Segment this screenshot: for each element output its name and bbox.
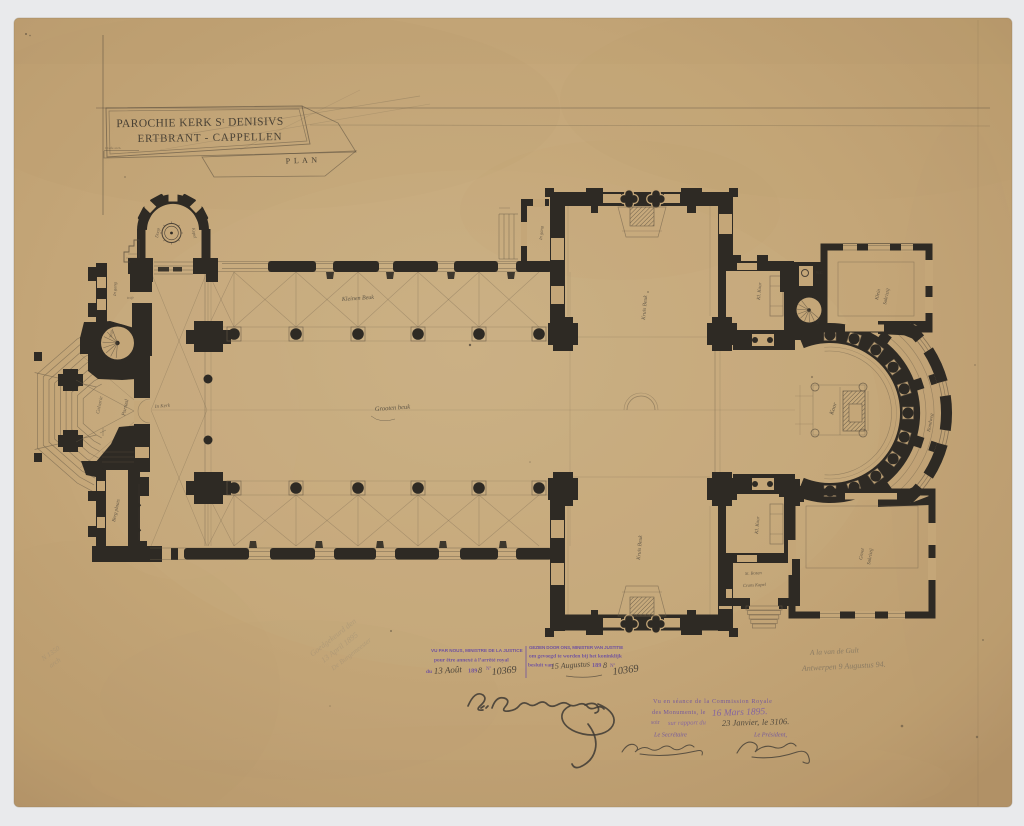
svg-text:Vu en séance de la Commission: Vu en séance de la Commission Royale xyxy=(653,698,773,705)
svg-text:St. Rozen: St. Rozen xyxy=(745,570,763,576)
svg-text:sur rapport du: sur rapport du xyxy=(668,719,707,727)
svg-text:In gang: In gang xyxy=(112,281,118,297)
svg-text:13 Août: 13 Août xyxy=(433,664,462,676)
svg-text:PAROCHIE KERK Sᵗ DENISIVS: PAROCHIE KERK Sᵗ DENISIVS xyxy=(116,116,284,130)
svg-text:189: 189 xyxy=(468,668,477,675)
svg-text:om gevoegd te worden bij het k: om gevoegd te worden bij het koninklijk xyxy=(529,654,622,660)
svg-text:soir: soir xyxy=(651,720,660,726)
svg-text:8: 8 xyxy=(603,661,607,670)
svg-text:Le Président,: Le Président, xyxy=(753,732,787,739)
svg-text:besluit van: besluit van xyxy=(528,663,553,669)
svg-text:Le Secrétaire: Le Secrétaire xyxy=(653,732,687,739)
svg-text:P L A N: P L A N xyxy=(286,155,319,165)
svg-text:VU PAR NOUS, MINISTRE DE LA JU: VU PAR NOUS, MINISTRE DE LA JUSTICE xyxy=(431,648,523,653)
svg-text:Trap: Trap xyxy=(108,330,114,338)
svg-text:J.Gife arch.: J.Gife arch. xyxy=(105,146,121,150)
svg-text:des Monuments, le: des Monuments, le xyxy=(652,709,706,716)
svg-text:trap: trap xyxy=(127,295,134,300)
svg-text:le 3106.: le 3106. xyxy=(762,716,790,727)
svg-text:du: du xyxy=(426,669,432,675)
svg-text:GEZIEN DOOR ONS, MINISTER VAN: GEZIEN DOOR ONS, MINISTER VAN JUSTITIE xyxy=(529,645,623,650)
svg-text:23 Janvier,: 23 Janvier, xyxy=(722,717,760,728)
svg-text:8: 8 xyxy=(478,666,482,675)
svg-text:189: 189 xyxy=(592,662,601,669)
svg-text:W.C.: W.C. xyxy=(816,271,823,275)
svg-text:pour être annexé à l’arrêté ro: pour être annexé à l’arrêté royal xyxy=(434,658,509,664)
